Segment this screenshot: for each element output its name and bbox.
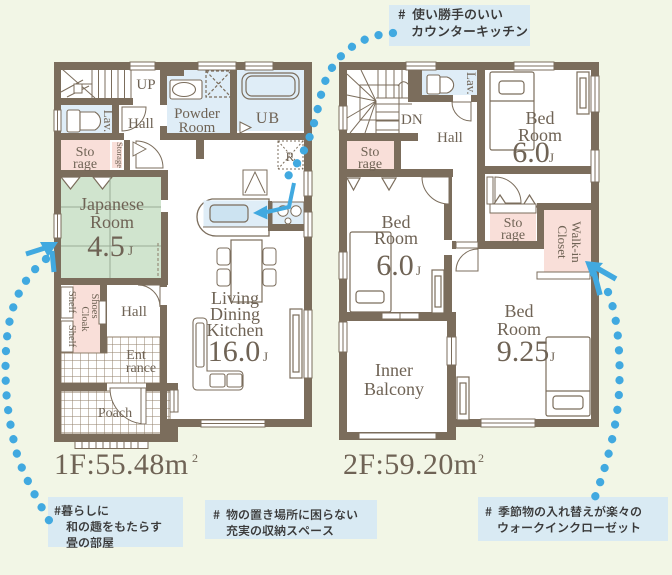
svg-text:Room: Room bbox=[179, 120, 216, 136]
svg-text:Japanese: Japanese bbox=[80, 194, 144, 214]
svg-text:Storage: Storage bbox=[115, 142, 125, 168]
svg-text:Room: Room bbox=[374, 228, 418, 248]
svg-text:6.0: 6.0 bbox=[512, 136, 550, 169]
svg-text:DN: DN bbox=[401, 112, 423, 128]
svg-text:Lav.: Lav. bbox=[101, 110, 116, 133]
svg-text:Cloak: Cloak bbox=[79, 306, 90, 332]
svg-text:J: J bbox=[416, 263, 421, 278]
svg-text:Hall: Hall bbox=[121, 304, 147, 320]
svg-text:J: J bbox=[128, 243, 133, 258]
svg-text:1F:55.48m: 1F:55.48m bbox=[54, 448, 188, 481]
svg-text:4.5: 4.5 bbox=[87, 230, 125, 263]
svg-text:Hall: Hall bbox=[437, 130, 463, 146]
svg-text:J: J bbox=[550, 349, 555, 364]
svg-text:Shelf: Shelf bbox=[66, 291, 77, 314]
svg-text:rage: rage bbox=[501, 228, 525, 243]
svg-text:UP: UP bbox=[136, 77, 155, 93]
svg-text:Shelf: Shelf bbox=[66, 325, 77, 348]
svg-text:Balcony: Balcony bbox=[364, 379, 424, 399]
svg-text:Walk-in: Walk-in bbox=[569, 221, 584, 263]
svg-text:9.25: 9.25 bbox=[497, 335, 550, 368]
svg-text:Poach: Poach bbox=[98, 406, 132, 421]
svg-text:J: J bbox=[549, 150, 554, 165]
svg-text:16.0: 16.0 bbox=[208, 335, 261, 368]
svg-text:Room: Room bbox=[90, 212, 134, 232]
svg-text:rance: rance bbox=[126, 361, 156, 376]
svg-text:Closet: Closet bbox=[555, 225, 570, 259]
svg-text:rage: rage bbox=[358, 157, 382, 172]
svg-text:Inner: Inner bbox=[375, 360, 413, 380]
svg-text:UB: UB bbox=[256, 110, 280, 127]
svg-text:rage: rage bbox=[73, 157, 97, 172]
svg-text:Hall: Hall bbox=[128, 116, 154, 132]
svg-text:Lav.: Lav. bbox=[464, 72, 479, 95]
svg-text:2: 2 bbox=[192, 451, 198, 465]
svg-text:2: 2 bbox=[478, 451, 484, 465]
svg-text:J: J bbox=[263, 349, 268, 364]
svg-text:Bed: Bed bbox=[505, 301, 534, 321]
svg-text:6.0: 6.0 bbox=[376, 249, 414, 282]
svg-text:2F:59.20m: 2F:59.20m bbox=[343, 448, 477, 481]
